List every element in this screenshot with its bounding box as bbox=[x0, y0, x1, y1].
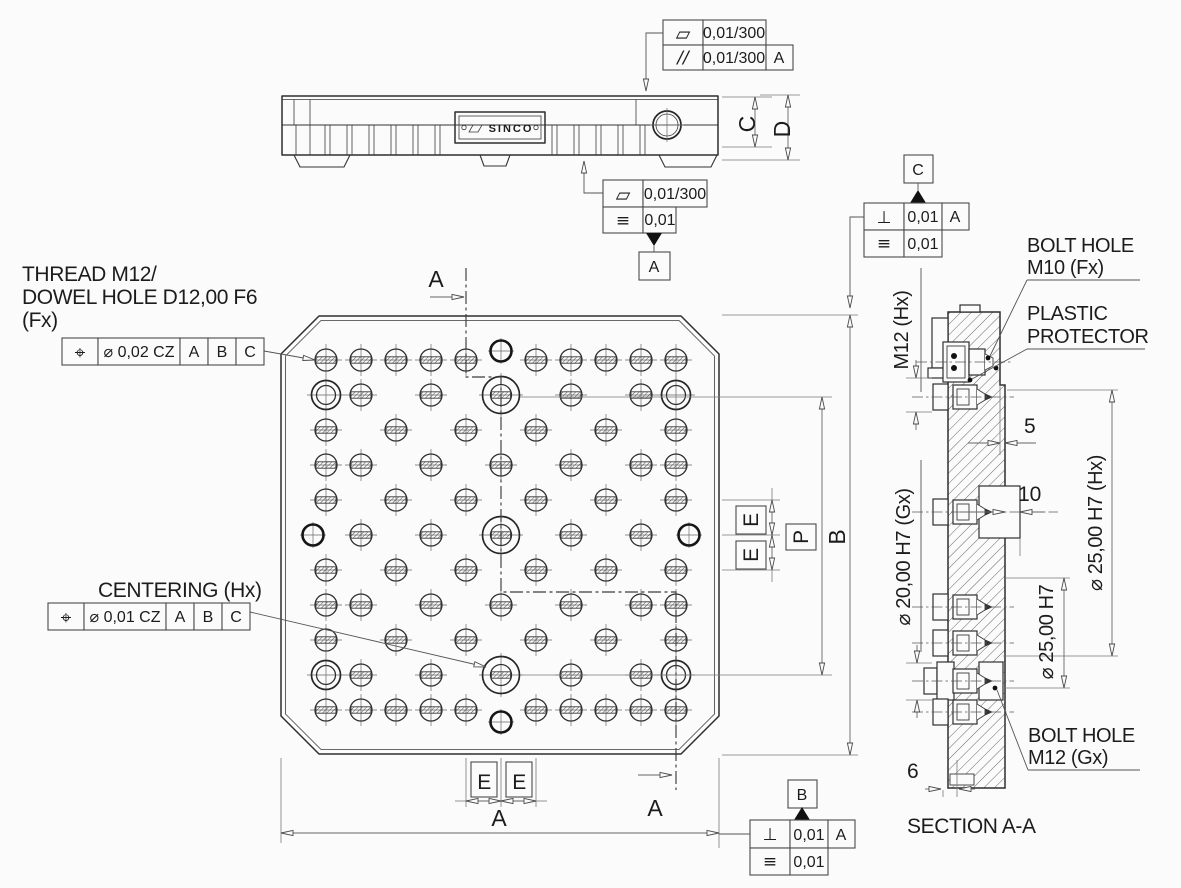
thread-slot bbox=[421, 707, 441, 713]
cut-arrow-label-bottom: A bbox=[647, 795, 663, 821]
brand-nameplate: SINCO bbox=[455, 112, 545, 143]
thread-slot bbox=[456, 427, 476, 433]
symmetry-symbol: ≡ bbox=[616, 211, 630, 231]
section-title: SECTION A-A bbox=[907, 815, 1036, 838]
position-symbol: ⌖ bbox=[61, 607, 72, 629]
section-view: M12 (Hx) ⌀ 20,00 H7 (Gx) ⌀ 25,00 H7 (Hx)… bbox=[891, 235, 1149, 838]
symmetry-symbol: ≡ bbox=[763, 852, 777, 872]
thread-slot bbox=[351, 707, 371, 713]
label-d25-h7-hx: ⌀ 25,00 H7 (Hx) bbox=[1085, 455, 1107, 591]
datum-triangle-icon bbox=[646, 233, 662, 246]
perpendicularity-value: 0,01 bbox=[793, 827, 824, 844]
thread-slot bbox=[631, 707, 651, 713]
thread-slot bbox=[526, 497, 546, 503]
thread-slot bbox=[492, 672, 511, 678]
foot-left bbox=[294, 155, 350, 167]
thread-slot bbox=[316, 357, 336, 363]
thread-slot bbox=[561, 357, 581, 363]
thread-slot bbox=[351, 357, 371, 363]
flatness-symbol: ▱ bbox=[616, 184, 631, 206]
thread-slot bbox=[386, 427, 406, 433]
plastic-protector-line2: PROTECTOR bbox=[1027, 326, 1149, 348]
datum-a-label: A bbox=[649, 259, 660, 276]
brand-logo-icon bbox=[469, 125, 482, 132]
symmetry-symbol: ≡ bbox=[877, 234, 891, 254]
symmetry-value: 0,01 bbox=[907, 236, 938, 253]
side-view: SINCO C D ▱ 0,01/300 // 0,01/300 A bbox=[282, 20, 800, 280]
dim-label-d: D bbox=[769, 121, 795, 138]
thread-slot bbox=[456, 567, 476, 573]
foot-middle bbox=[480, 155, 510, 166]
plastic-protector-line1: PLASTIC bbox=[1027, 303, 1108, 325]
centering-title: CENTERING (Hx) bbox=[98, 579, 262, 602]
thread-slot bbox=[316, 707, 336, 713]
perpendicularity-symbol: ⊥ bbox=[877, 208, 892, 228]
bolt-hole-m12-line1: BOLT HOLE bbox=[1028, 725, 1135, 747]
flatness-value: 0,01/300 bbox=[703, 25, 765, 42]
datum-ref-a: A bbox=[950, 209, 961, 226]
dim-label-a: A bbox=[491, 805, 507, 831]
thread-callout-line1: THREAD M12/ bbox=[22, 263, 157, 286]
thread-slot bbox=[666, 462, 686, 468]
flatness-symbol: ▱ bbox=[676, 23, 691, 45]
thread-slot bbox=[631, 602, 651, 608]
position-symbol: ⌖ bbox=[75, 342, 86, 364]
thread-slot bbox=[561, 602, 581, 608]
drawing-sheet: SINCO C D ▱ 0,01/300 // 0,01/300 A bbox=[0, 0, 1181, 888]
thread-callout-line3: (Fx) bbox=[22, 309, 58, 332]
dim-label-e: E bbox=[512, 771, 526, 794]
fcf-datum-b: B ⊥ 0,01 A ≡ 0,01 bbox=[719, 780, 855, 875]
centering-callout: CENTERING (Hx) ⌖ ⌀ 0,01 CZ A B C bbox=[48, 579, 486, 667]
thread-slot bbox=[596, 497, 616, 503]
dim-label-b: B bbox=[824, 529, 850, 544]
dim-label-e: E bbox=[477, 771, 491, 794]
nameplate-screw-icon bbox=[462, 125, 466, 129]
datum-triangle-icon bbox=[910, 190, 926, 203]
flatness-value: 0,01/300 bbox=[644, 186, 706, 203]
thread-slot bbox=[351, 532, 371, 538]
nameplate-screw-icon bbox=[534, 125, 538, 129]
bolt-hole-m10-line2: M10 (Fx) bbox=[1027, 257, 1104, 279]
datum-b-label: B bbox=[797, 787, 808, 804]
thread-slot bbox=[316, 462, 336, 468]
thread-slot bbox=[421, 532, 441, 538]
brand-name: SINCO bbox=[489, 123, 534, 135]
thread-slot bbox=[316, 567, 336, 573]
dim-5: 5 bbox=[1024, 415, 1036, 438]
thread-slot bbox=[666, 497, 686, 503]
datum-ref-b: B bbox=[217, 344, 228, 361]
thread-slot bbox=[526, 637, 546, 643]
perpendicularity-value: 0,01 bbox=[907, 209, 938, 226]
thread-slot bbox=[631, 357, 651, 363]
thread-slot bbox=[386, 357, 406, 363]
engineering-drawing: SINCO C D ▱ 0,01/300 // 0,01/300 A bbox=[0, 0, 1181, 888]
thread-slot bbox=[631, 532, 651, 538]
thread-slot bbox=[386, 567, 406, 573]
thread-slot bbox=[386, 497, 406, 503]
label-m12-hx: M12 (Hx) bbox=[891, 290, 913, 369]
thread-callout: THREAD M12/ DOWEL HOLE D12,00 F6 (Fx) ⌖ … bbox=[22, 263, 315, 365]
thread-slot bbox=[421, 357, 441, 363]
datum-triangle-icon bbox=[794, 807, 810, 820]
datum-ref-b: B bbox=[203, 609, 214, 626]
thread-slot bbox=[666, 357, 686, 363]
parallelism-value: 0,01/300 bbox=[703, 50, 765, 67]
dim-6: 6 bbox=[907, 760, 919, 783]
dim-label-e: E bbox=[740, 548, 763, 562]
thread-slot bbox=[316, 602, 336, 608]
thread-slot bbox=[421, 462, 441, 468]
perpendicularity-symbol: ⊥ bbox=[763, 825, 778, 845]
thread-slot bbox=[596, 427, 616, 433]
thread-slot bbox=[631, 462, 651, 468]
bolt-hole-m10-line1: BOLT HOLE bbox=[1027, 235, 1134, 257]
thread-slot bbox=[596, 357, 616, 363]
datum-ref-a: A bbox=[189, 344, 200, 361]
datum-ref-c: C bbox=[230, 609, 242, 626]
thread-slot bbox=[386, 707, 406, 713]
thread-slot bbox=[351, 462, 371, 468]
datum-ref-a: A bbox=[774, 50, 785, 67]
thread-slot bbox=[316, 637, 336, 643]
label-d20-h7-gx: ⌀ 20,00 H7 (Gx) bbox=[893, 488, 915, 625]
thread-slot bbox=[421, 602, 441, 608]
thread-slot bbox=[596, 567, 616, 573]
thread-slot bbox=[456, 707, 476, 713]
thread-slot bbox=[561, 532, 581, 538]
thread-slot bbox=[561, 707, 581, 713]
label-d25-h7: ⌀ 25,00 H7 bbox=[1036, 584, 1058, 679]
thread-slot bbox=[316, 427, 336, 433]
symmetry-value: 0,01 bbox=[793, 854, 824, 871]
datum-ref-c: C bbox=[244, 344, 256, 361]
fcf-bottom-datum-a: ▱ 0,01/300 ≡ 0,01 A bbox=[584, 161, 707, 280]
thread-slot bbox=[526, 567, 546, 573]
thread-slot bbox=[316, 497, 336, 503]
thread-slot bbox=[526, 707, 546, 713]
centering-tolerance: ⌀ 0,01 CZ bbox=[90, 609, 161, 626]
thread-slot bbox=[421, 392, 441, 398]
thread-callout-line2: DOWEL HOLE D12,00 F6 bbox=[22, 286, 257, 309]
thread-slot bbox=[526, 427, 546, 433]
thread-slot bbox=[666, 427, 686, 433]
thread-slot bbox=[351, 602, 371, 608]
thread-slot bbox=[386, 637, 406, 643]
thread-slot bbox=[666, 567, 686, 573]
datum-ref-a: A bbox=[175, 609, 186, 626]
thread-tolerance: ⌀ 0,02 CZ bbox=[104, 344, 175, 361]
thread-slot bbox=[596, 637, 616, 643]
thread-slot bbox=[561, 462, 581, 468]
thread-slot bbox=[491, 602, 511, 608]
parallelism-symbol: // bbox=[675, 48, 691, 68]
foot-right bbox=[659, 155, 717, 167]
thread-slot bbox=[526, 357, 546, 363]
plan-view: A A THREAD M12/ DOWEL HOLE D12,00 F6 (Fx… bbox=[22, 263, 858, 848]
datum-c-label: C bbox=[912, 162, 924, 179]
fcf-datum-c: C ⊥ 0,01 A ≡ 0,01 bbox=[850, 155, 969, 308]
thread-slot bbox=[596, 707, 616, 713]
side-bushing bbox=[650, 108, 684, 142]
symmetry-value: 0,01 bbox=[644, 212, 675, 229]
dim-label-e: E bbox=[740, 513, 763, 527]
side-dims: C D bbox=[722, 95, 800, 160]
fcf-top: ▱ 0,01/300 // 0,01/300 A bbox=[646, 20, 793, 91]
thread-slot bbox=[351, 392, 371, 398]
bolt-hole-m12-line2: M12 (Gx) bbox=[1028, 747, 1108, 769]
thread-slot bbox=[421, 672, 441, 678]
cut-arrow-label-top: A bbox=[428, 266, 444, 292]
thread-slot bbox=[456, 497, 476, 503]
dim-label-p: P bbox=[790, 530, 813, 544]
dim-10: 10 bbox=[1018, 483, 1041, 506]
tslot-ticks bbox=[294, 100, 645, 156]
datum-ref-a: A bbox=[836, 827, 847, 844]
thread-slot bbox=[456, 637, 476, 643]
dim-label-c: C bbox=[734, 116, 760, 133]
thread-slot bbox=[351, 672, 371, 678]
